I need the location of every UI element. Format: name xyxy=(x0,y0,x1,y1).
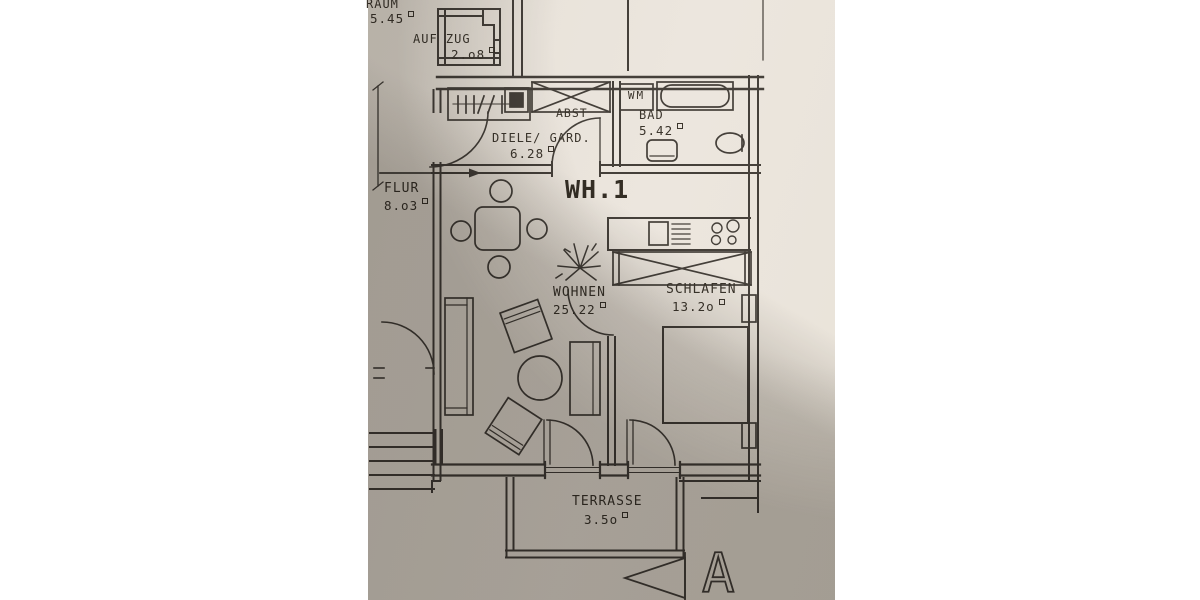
sofa xyxy=(445,298,473,415)
photo-canvas: A RAUM 5.45 AUF ZUG 2.o8 WM ABST BAD 5.4… xyxy=(0,0,1200,600)
round-table xyxy=(518,356,562,400)
room-label-flur: FLUR 8.o3 xyxy=(384,182,428,213)
wall-bottom xyxy=(432,462,760,478)
wall-main-horizontal xyxy=(432,162,760,176)
wall-diele-bad xyxy=(613,82,620,166)
room-label-raum: RAUM 5.45 xyxy=(366,0,414,26)
dining-chair xyxy=(490,180,512,202)
terrace-door-arc-bedroom xyxy=(627,420,675,465)
sideboard-x xyxy=(613,252,751,285)
room-label-terrasse: TERRASSE 3.5o xyxy=(572,495,643,527)
washbasin-icon xyxy=(647,140,677,161)
terrace-door-arc-living xyxy=(544,420,593,465)
flur-door-arc xyxy=(374,322,434,378)
bathtub-icon xyxy=(657,82,733,110)
dining-chair xyxy=(451,221,471,241)
stove-icon xyxy=(672,224,690,244)
armchair-2 xyxy=(485,398,541,455)
burner-icons xyxy=(712,220,740,245)
section-letter: A xyxy=(702,542,735,600)
wall-wohnen-schlafen xyxy=(608,337,615,465)
dining-chair xyxy=(527,219,547,239)
dining-table xyxy=(475,207,520,250)
armchair-1 xyxy=(500,299,552,352)
bed xyxy=(663,327,748,423)
floorplan-photo: A RAUM 5.45 AUF ZUG 2.o8 WM ABST BAD 5.4… xyxy=(368,0,835,600)
kitchen-sink-icon xyxy=(649,222,668,245)
room-label-aufzug: AUF ZUG 2.o8 xyxy=(413,33,495,62)
room-label-schlafen: SCHLAFEN 13.2o xyxy=(666,283,737,314)
dining-chair xyxy=(488,256,510,278)
section-triangle-icon xyxy=(625,553,685,600)
room-label-abst: ABST xyxy=(556,107,588,120)
toilet-icon xyxy=(716,133,744,153)
shoe-cabinet xyxy=(505,88,528,112)
wall-top-stubs xyxy=(513,0,763,76)
room-label-diele: DIELE/ GARD. 6.28 xyxy=(492,132,591,161)
room-label-wm: WM xyxy=(620,90,653,102)
wall-left xyxy=(434,90,441,480)
room-label-bad: BAD 5.42 xyxy=(639,109,683,138)
plant-icon xyxy=(556,244,600,280)
unit-label-wh1: WH.1 xyxy=(565,176,629,204)
stairs xyxy=(370,430,442,492)
entrance-arrow-icon xyxy=(380,169,481,178)
shelf xyxy=(570,342,600,415)
room-label-wohnen: WOHNEN 25.22 xyxy=(553,286,606,317)
